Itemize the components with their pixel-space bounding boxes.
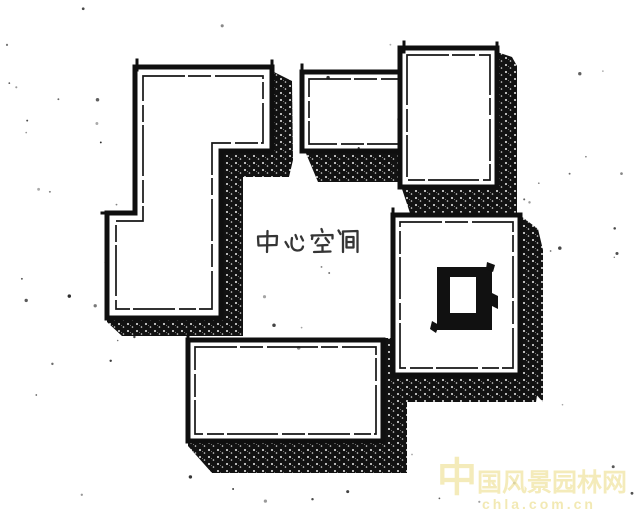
- speckle-dot: [133, 336, 135, 338]
- speckle-dot: [94, 304, 97, 307]
- speckle-dot: [200, 446, 203, 449]
- speckle-dot: [538, 182, 540, 184]
- speckle-dot: [100, 141, 102, 143]
- speckle-dot: [49, 191, 51, 193]
- speckle-dot: [290, 123, 292, 125]
- watermark: 中国风景园林网 chla.com.cn: [437, 452, 637, 516]
- speckle-dot: [346, 490, 349, 493]
- speckle-dot: [6, 44, 8, 46]
- bottom-rectangular-block: [188, 340, 383, 441]
- speckle-dot: [397, 118, 399, 120]
- speckle-dot: [578, 72, 581, 75]
- speckle-dot: [615, 252, 618, 255]
- speckle-dot: [349, 459, 352, 462]
- speckle-dot: [116, 204, 118, 206]
- speckle-dot: [550, 250, 552, 252]
- watermark-site-url: chla.com.cn: [482, 496, 637, 512]
- block-outline: [107, 67, 272, 318]
- shadow-courtyard-block-bottom: [392, 375, 540, 402]
- speckle-dot: [562, 404, 564, 406]
- speckle-dot: [271, 113, 273, 115]
- speckle-dot: [344, 172, 347, 175]
- right-courtyard-block-with-inner-square: [393, 215, 520, 375]
- speckle-dot: [558, 246, 562, 250]
- inner-square-hole: [450, 277, 476, 313]
- speckle-dot: [51, 363, 53, 365]
- speckle-dot: [228, 298, 232, 302]
- speckle-dot: [585, 156, 587, 158]
- speckle-dot: [509, 393, 512, 396]
- speckle-dot: [68, 294, 71, 297]
- speckle-dot: [8, 82, 10, 84]
- scanned-sketch-page: 中心空间 中国风景园林网 chla.com.cn: [0, 0, 640, 518]
- block-outline-left-part: [302, 72, 407, 151]
- speckle-dot: [321, 266, 323, 268]
- speckle-dot: [263, 295, 266, 298]
- speckle-dot: [613, 227, 616, 230]
- speckle-dot: [528, 201, 530, 203]
- speckle-dot: [523, 198, 525, 200]
- speckle-dot: [189, 475, 192, 478]
- speckle-dot: [358, 147, 360, 149]
- concept-plan-drawing: [0, 0, 640, 518]
- speckle-dot: [518, 289, 521, 292]
- speckle-dot: [326, 76, 329, 79]
- speckle-dot: [503, 206, 505, 208]
- speckle-dot: [35, 394, 37, 396]
- speckle-dot: [272, 323, 276, 327]
- shadow-upper-right-block-below-left: [305, 151, 400, 182]
- speckle-dot: [523, 367, 526, 370]
- speckle-dot: [82, 7, 85, 10]
- speckle-dot: [449, 394, 452, 397]
- block-outline: [188, 340, 383, 441]
- speckle-dot: [620, 172, 623, 175]
- speckle-dot: [344, 467, 348, 471]
- speckle-dot: [602, 70, 603, 71]
- speckle-dot: [297, 346, 301, 350]
- speckle-dot: [366, 458, 368, 460]
- block-outline-right-part: [400, 48, 497, 187]
- speckle-dot: [227, 231, 230, 234]
- speckle-dot: [264, 499, 267, 502]
- speckle-dot: [569, 173, 571, 175]
- center-space-label: 中心空间: [253, 226, 373, 258]
- speckle-dot: [95, 122, 98, 125]
- upper-left-l-shaped-block: [107, 67, 272, 318]
- speckle-dot: [221, 24, 224, 27]
- shadow-bottom-block-bottom: [188, 441, 407, 473]
- speckle-dot: [96, 98, 100, 102]
- speckle-dot: [25, 132, 27, 134]
- speckle-dot: [81, 494, 83, 496]
- speckle-dot: [372, 458, 373, 459]
- speckle-dot: [614, 257, 615, 258]
- speckle-dot: [411, 454, 413, 456]
- speckle-dot: [232, 488, 234, 490]
- speckle-dot: [311, 498, 313, 500]
- speckle-dot: [117, 340, 119, 342]
- speckle-dot: [232, 67, 234, 69]
- speckle-dot: [25, 299, 28, 302]
- speckle-dot: [389, 44, 391, 46]
- speckle-dot: [15, 86, 17, 88]
- speckle-dot: [37, 188, 40, 191]
- speckle-dot: [328, 272, 330, 274]
- speckle-dot: [104, 261, 106, 263]
- speckle-dot: [26, 120, 28, 122]
- speckle-dot: [301, 327, 303, 329]
- speckle-dot: [499, 166, 501, 168]
- speckle-dot: [21, 278, 23, 280]
- speckle-dot: [301, 98, 304, 101]
- speckle-dot: [109, 360, 111, 362]
- speckle-dot: [328, 466, 329, 467]
- speckle-dot: [57, 98, 59, 100]
